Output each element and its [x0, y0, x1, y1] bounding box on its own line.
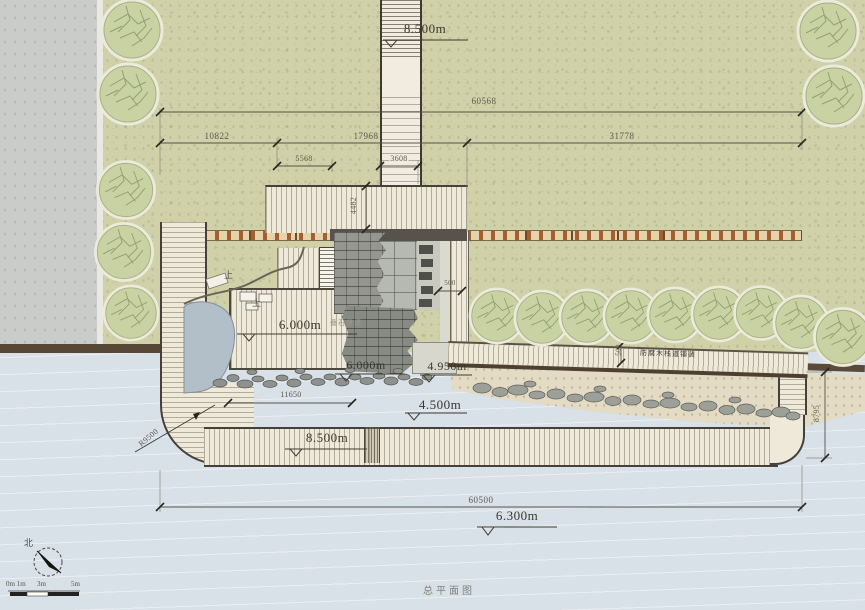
tree-icon: [102, 0, 162, 60]
tree-icon: [96, 224, 153, 281]
shore-stones: [213, 368, 432, 389]
tree-icon: [798, 1, 858, 61]
deck-furniture: [240, 292, 272, 310]
north-compass-icon: [34, 548, 62, 576]
plan-linework-overlay: [0, 0, 865, 610]
site-plan-canvas: 8.500m 60568 10822 17968 31778 5568 3608…: [0, 0, 865, 610]
pond: [184, 302, 235, 393]
elevation-markers: [237, 40, 557, 535]
tree-icon: [98, 162, 155, 219]
tree-icon: [815, 309, 865, 366]
radius-leader: [135, 405, 215, 452]
scale-bar: [8, 591, 80, 596]
tree-icon: [804, 66, 864, 126]
riprap-stones: [473, 381, 800, 420]
tree-icon: [104, 286, 158, 340]
path-paver: [206, 273, 228, 289]
tree-icon: [98, 64, 158, 124]
step-stones: [419, 245, 433, 307]
